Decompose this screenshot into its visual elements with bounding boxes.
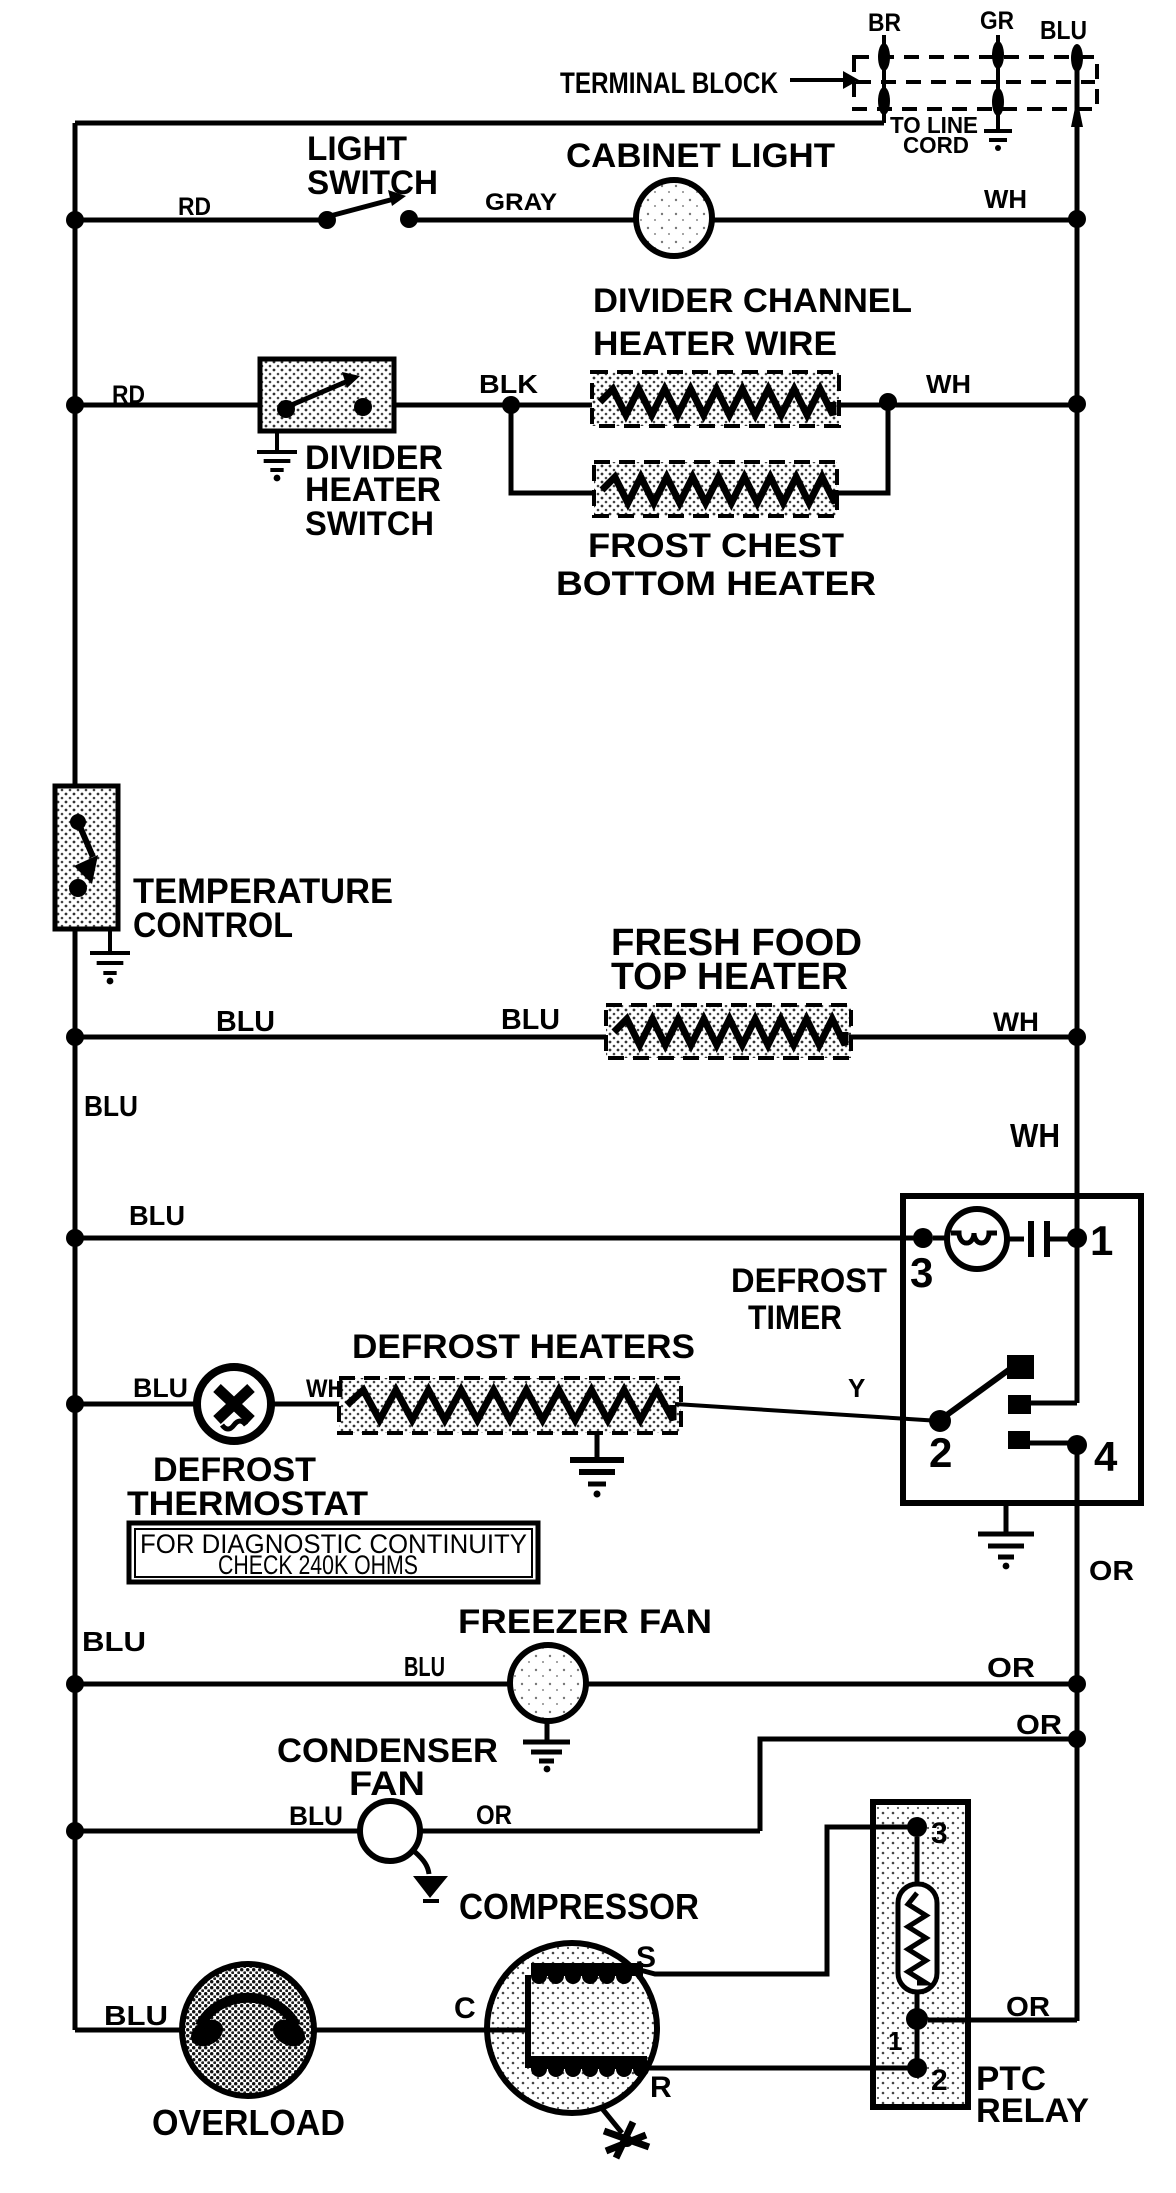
svg-text:BLU: BLU — [84, 1091, 138, 1123]
svg-text:2: 2 — [931, 2064, 948, 2097]
svg-text:WH: WH — [993, 1007, 1039, 1037]
svg-text:BLU: BLU — [133, 1373, 188, 1403]
svg-text:OR: OR — [476, 1800, 512, 1830]
svg-text:LIGHT: LIGHT — [307, 130, 407, 168]
svg-text:OR: OR — [1089, 1555, 1134, 1586]
svg-text:SWITCH: SWITCH — [307, 164, 438, 202]
svg-text:TERMINAL BLOCK: TERMINAL BLOCK — [560, 67, 778, 100]
svg-text:R: R — [650, 2071, 672, 2104]
svg-text:BR: BR — [868, 9, 901, 37]
svg-text:DIVIDER CHANNEL: DIVIDER CHANNEL — [593, 282, 912, 320]
svg-text:BLK: BLK — [479, 369, 538, 399]
svg-text:BLU: BLU — [104, 2000, 168, 2031]
svg-text:CABINET LIGHT: CABINET LIGHT — [566, 137, 835, 175]
svg-text:WH: WH — [984, 184, 1027, 214]
svg-text:WH: WH — [926, 369, 971, 399]
svg-text:Y: Y — [848, 1373, 865, 1403]
svg-text:GRAY: GRAY — [485, 189, 557, 216]
svg-text:OR: OR — [987, 1652, 1035, 1683]
svg-text:1: 1 — [888, 2026, 902, 2056]
svg-text:CHECK 240K OHMS: CHECK 240K OHMS — [218, 1550, 418, 1580]
svg-text:BLU: BLU — [289, 1801, 343, 1831]
svg-text:4: 4 — [1094, 1433, 1118, 1480]
svg-text:BLU: BLU — [501, 1004, 560, 1036]
svg-text:HEATER WIRE: HEATER WIRE — [593, 325, 837, 363]
svg-text:RD: RD — [178, 193, 211, 221]
svg-text:BOTTOM HEATER: BOTTOM HEATER — [556, 565, 876, 603]
svg-text:HEATER: HEATER — [305, 471, 441, 509]
svg-text:WH: WH — [306, 1375, 344, 1403]
svg-text:OVERLOAD: OVERLOAD — [152, 2102, 345, 2143]
svg-text:2: 2 — [929, 1429, 952, 1476]
svg-text:COMPRESSOR: COMPRESSOR — [459, 1886, 699, 1927]
svg-text:FREEZER FAN: FREEZER FAN — [458, 1603, 712, 1641]
svg-text:THERMOSTAT: THERMOSTAT — [127, 1485, 368, 1523]
svg-text:1: 1 — [1090, 1217, 1113, 1264]
svg-text:RD: RD — [112, 381, 145, 409]
svg-text:CONTROL: CONTROL — [133, 906, 293, 945]
svg-text:DEFROST: DEFROST — [731, 1262, 887, 1300]
svg-text:TOP HEATER: TOP HEATER — [611, 956, 848, 998]
svg-text:OR: OR — [1016, 1709, 1062, 1740]
svg-text:C: C — [454, 1992, 476, 2025]
svg-text:BLU: BLU — [404, 1651, 445, 1682]
svg-text:WH: WH — [1010, 1117, 1060, 1154]
svg-text:RELAY: RELAY — [976, 2092, 1089, 2130]
svg-text:GR: GR — [980, 7, 1014, 35]
svg-text:BLU: BLU — [1040, 15, 1087, 45]
svg-text:FAN: FAN — [349, 1765, 425, 1803]
svg-text:DEFROST: DEFROST — [153, 1451, 316, 1489]
svg-text:CORD: CORD — [903, 132, 969, 158]
svg-text:3: 3 — [910, 1249, 933, 1296]
svg-text:BLU: BLU — [82, 1626, 146, 1657]
svg-text:BLU: BLU — [216, 1006, 275, 1038]
svg-text:FROST CHEST: FROST CHEST — [588, 527, 844, 565]
svg-text:OR: OR — [1006, 1991, 1050, 2022]
svg-text:SWITCH: SWITCH — [305, 505, 434, 543]
svg-text:BLU: BLU — [129, 1200, 185, 1231]
svg-text:DEFROST HEATERS: DEFROST HEATERS — [352, 1328, 695, 1366]
svg-text:TIMER: TIMER — [748, 1299, 842, 1337]
svg-text:3: 3 — [931, 1817, 948, 1850]
